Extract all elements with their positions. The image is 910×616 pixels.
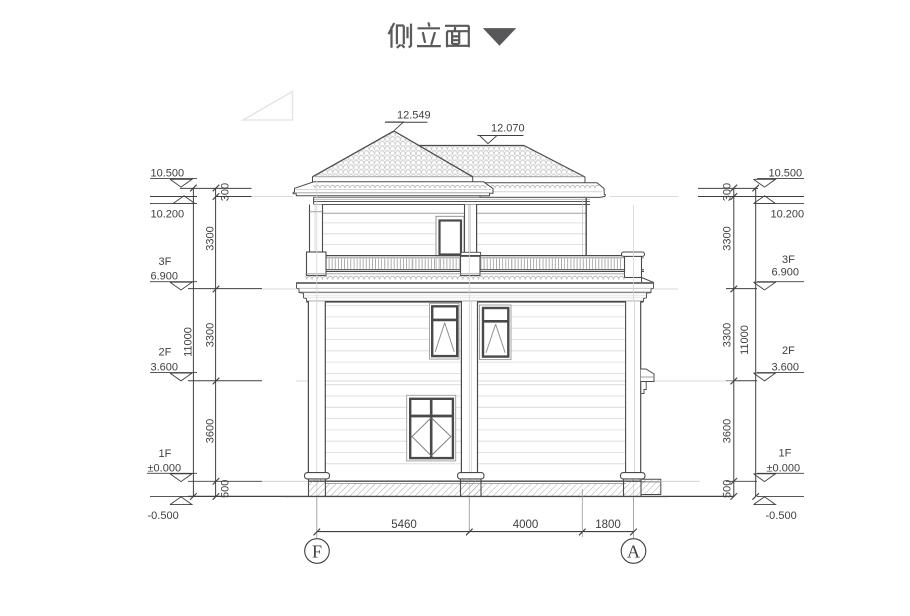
- svg-text:6.900: 6.900: [772, 267, 800, 279]
- svg-text:10.200: 10.200: [151, 209, 185, 221]
- svg-text:500: 500: [722, 480, 734, 498]
- svg-text:3F: 3F: [159, 256, 172, 268]
- svg-text:10.200: 10.200: [771, 209, 805, 221]
- svg-text:500: 500: [220, 480, 232, 498]
- svg-text:1F: 1F: [779, 448, 792, 460]
- svg-text:5460: 5460: [391, 519, 417, 531]
- svg-text:-0.500: -0.500: [148, 510, 179, 522]
- svg-text:-0.500: -0.500: [766, 510, 797, 522]
- svg-text:300: 300: [722, 183, 734, 201]
- svg-text:±0.000: ±0.000: [767, 463, 801, 475]
- svg-text:3600: 3600: [722, 419, 734, 443]
- svg-text:10.500: 10.500: [769, 167, 803, 179]
- svg-text:3300: 3300: [205, 226, 217, 250]
- svg-text:F: F: [312, 542, 322, 562]
- svg-text:3600: 3600: [205, 419, 217, 443]
- svg-text:1F: 1F: [159, 448, 172, 460]
- svg-text:2F: 2F: [159, 347, 172, 359]
- svg-text:1800: 1800: [595, 519, 621, 531]
- svg-text:±0.000: ±0.000: [148, 463, 182, 475]
- svg-text:2F: 2F: [782, 345, 795, 357]
- svg-text:6.900: 6.900: [151, 270, 179, 282]
- svg-text:3300: 3300: [722, 323, 734, 347]
- svg-text:12.070: 12.070: [491, 123, 525, 135]
- svg-text:A: A: [627, 542, 640, 562]
- svg-text:3300: 3300: [205, 323, 217, 347]
- svg-text:4000: 4000: [513, 519, 539, 531]
- svg-text:11000: 11000: [183, 327, 195, 357]
- svg-text:11000: 11000: [739, 325, 751, 355]
- svg-text:300: 300: [220, 183, 232, 201]
- svg-text:3F: 3F: [782, 254, 795, 266]
- svg-text:3.600: 3.600: [151, 361, 179, 373]
- svg-text:12.549: 12.549: [397, 110, 431, 122]
- svg-text:3300: 3300: [722, 226, 734, 250]
- svg-text:10.500: 10.500: [151, 167, 185, 179]
- svg-text:3.600: 3.600: [772, 361, 800, 373]
